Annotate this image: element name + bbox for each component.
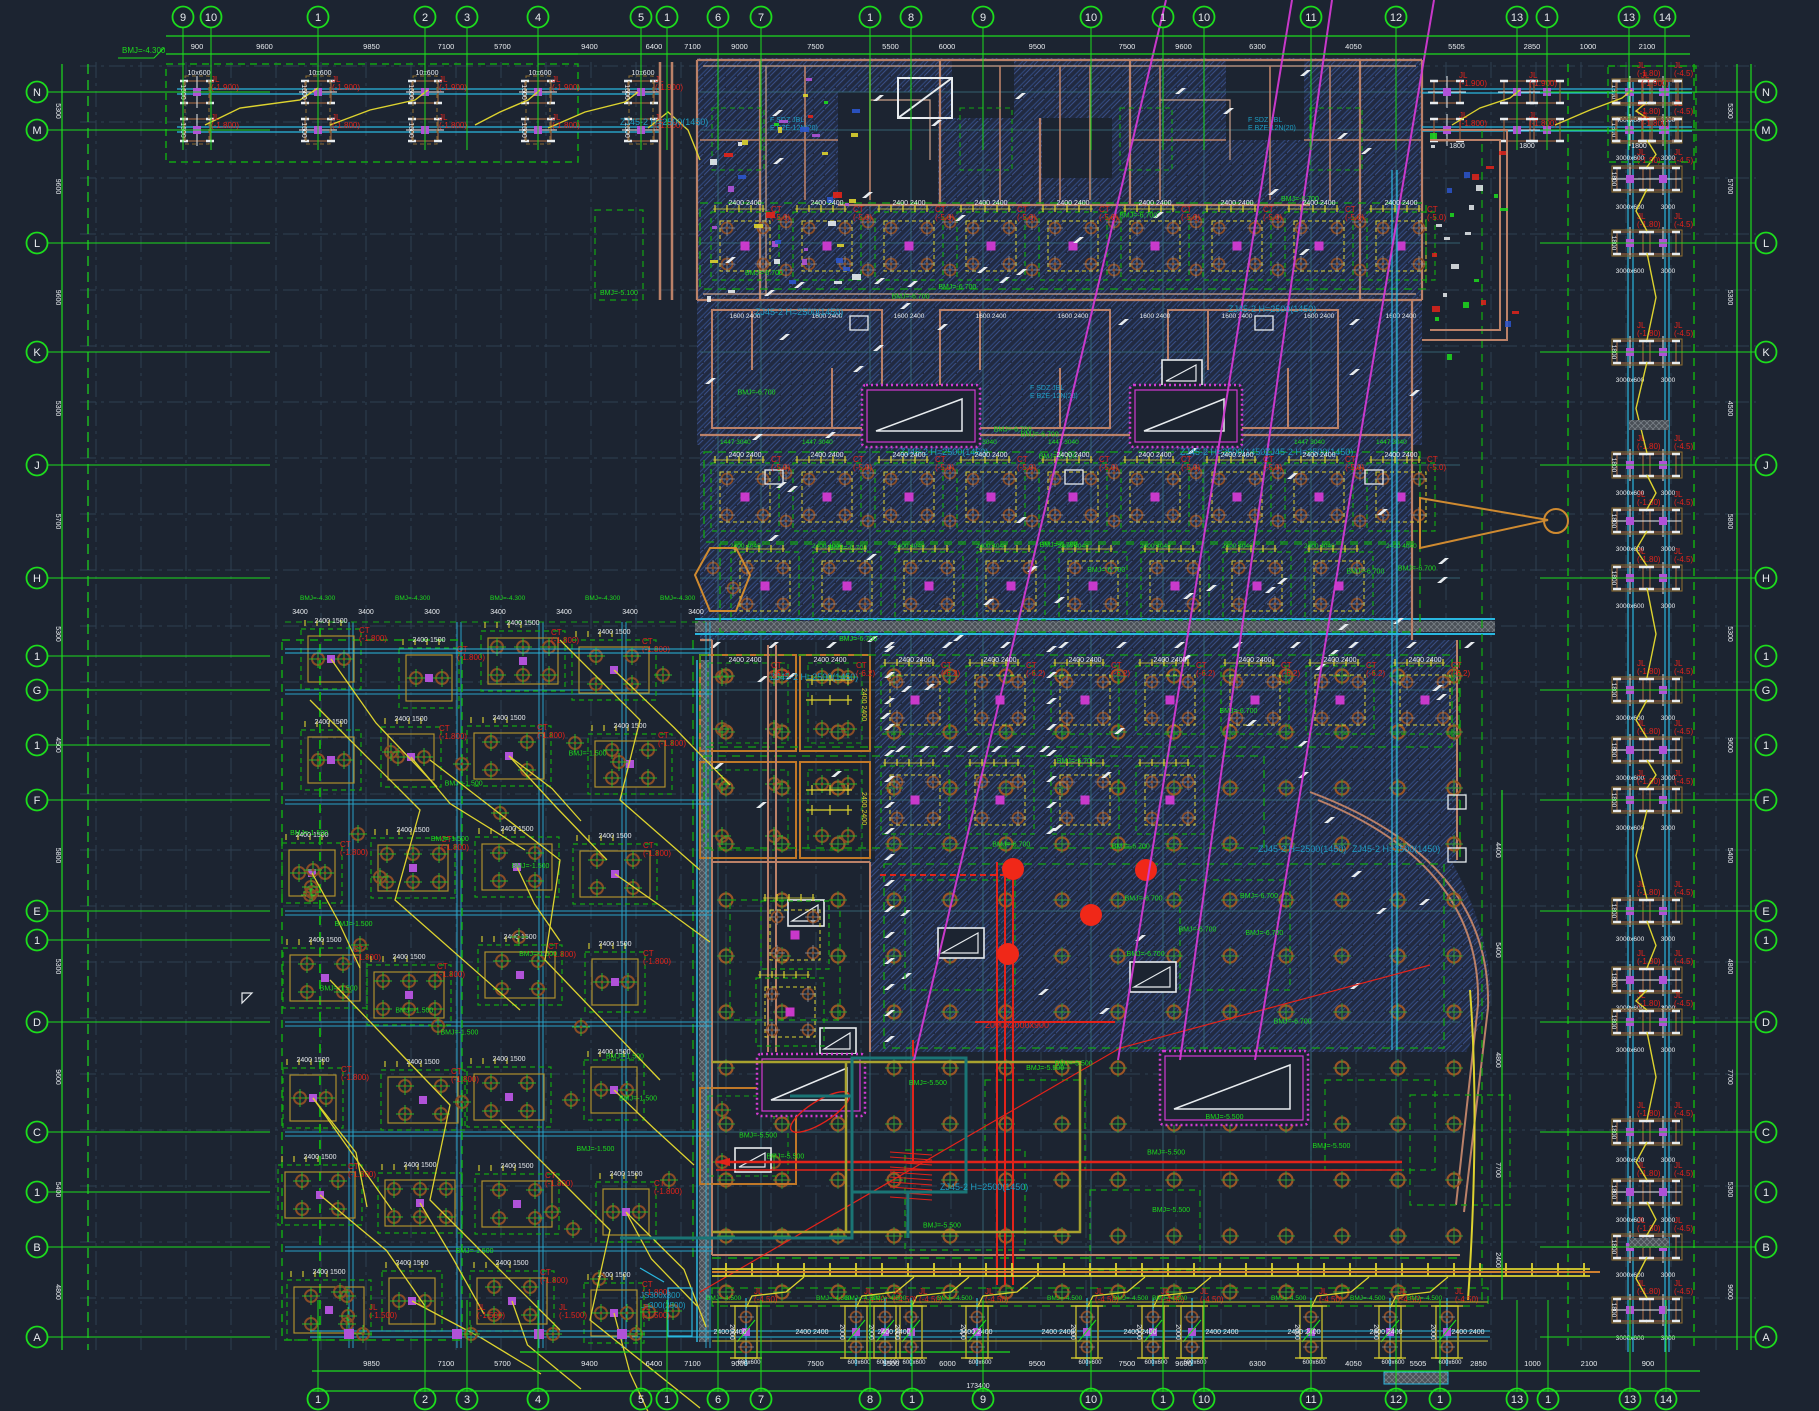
svg-text:9600: 9600 bbox=[1175, 42, 1192, 51]
svg-text:(-1.800): (-1.800) bbox=[441, 843, 469, 852]
svg-text:2100: 2100 bbox=[1639, 42, 1656, 51]
svg-text:H: H bbox=[33, 573, 41, 585]
svg-text:(-5.0): (-5.0) bbox=[1181, 213, 1200, 222]
svg-text:BMJ=-4.300: BMJ=-4.300 bbox=[300, 595, 336, 602]
svg-text:2400 4040: 2400 4040 bbox=[1140, 543, 1171, 550]
svg-text:13: 13 bbox=[1624, 1394, 1636, 1406]
svg-text:2400 4040: 2400 4040 bbox=[1222, 543, 1253, 550]
svg-text:10x600: 10x600 bbox=[416, 70, 439, 77]
svg-text:BMJ=-1.500: BMJ=-1.500 bbox=[395, 1008, 433, 1015]
svg-text:1000: 1000 bbox=[1580, 42, 1597, 51]
svg-text:M: M bbox=[1761, 125, 1770, 137]
svg-text:600x600: 600x600 bbox=[1438, 1360, 1462, 1366]
svg-text:BMJ=-5.500: BMJ=-5.500 bbox=[1312, 1143, 1350, 1150]
svg-text:3400: 3400 bbox=[490, 609, 506, 616]
svg-text:7100: 7100 bbox=[684, 1359, 701, 1368]
svg-text:4050: 4050 bbox=[1345, 1359, 1362, 1368]
svg-text:3: 3 bbox=[464, 1394, 470, 1406]
svg-text:6300: 6300 bbox=[1249, 1359, 1266, 1368]
svg-text:(-5.0): (-5.0) bbox=[935, 213, 954, 222]
svg-text:(-6.2): (-6.2) bbox=[1026, 669, 1045, 678]
svg-text:BMJ=-1.500: BMJ=-1.500 bbox=[290, 830, 328, 837]
svg-text:(-1.800): (-1.800) bbox=[439, 121, 467, 130]
svg-text:7500: 7500 bbox=[807, 42, 824, 51]
svg-text:BMJ=-4.300: BMJ=-4.300 bbox=[395, 595, 431, 602]
svg-text:5800: 5800 bbox=[54, 848, 61, 864]
svg-text:1447 3040: 1447 3040 bbox=[802, 439, 833, 446]
svg-text:1: 1 bbox=[1763, 1187, 1769, 1199]
svg-text:1800: 1800 bbox=[1449, 143, 1465, 150]
svg-text:2400 1500: 2400 1500 bbox=[492, 1056, 525, 1063]
svg-text:1: 1 bbox=[1763, 651, 1769, 663]
svg-text:5: 5 bbox=[638, 1394, 644, 1406]
svg-text:1: 1 bbox=[664, 12, 670, 24]
svg-text:1800: 1800 bbox=[1610, 1185, 1617, 1200]
svg-text:5505: 5505 bbox=[1410, 1359, 1427, 1368]
svg-text:13: 13 bbox=[1623, 12, 1635, 24]
svg-text:BMJ=-1.500: BMJ=-1.500 bbox=[431, 836, 469, 843]
svg-text:3000: 3000 bbox=[1661, 1335, 1676, 1342]
svg-text:1447 3040: 1447 3040 bbox=[1048, 439, 1079, 446]
svg-text:5300: 5300 bbox=[1726, 103, 1733, 119]
svg-text:(-6.2): (-6.2) bbox=[1196, 669, 1215, 678]
svg-text:(-4.5): (-4.5) bbox=[1674, 329, 1693, 338]
svg-text:1800: 1800 bbox=[1610, 973, 1617, 988]
svg-text:(-1.800): (-1.800) bbox=[1459, 119, 1487, 128]
svg-text:2400 1500: 2400 1500 bbox=[303, 1154, 336, 1161]
svg-text:6400: 6400 bbox=[646, 42, 663, 51]
svg-text:(-1.800): (-1.800) bbox=[658, 739, 686, 748]
svg-text:2400 4040: 2400 4040 bbox=[1386, 543, 1417, 550]
svg-text:(-6.2): (-6.2) bbox=[856, 669, 875, 678]
svg-text:2000: 2000 bbox=[1174, 1324, 1181, 1340]
svg-text:L: L bbox=[34, 238, 40, 250]
svg-text:7500: 7500 bbox=[1119, 1359, 1136, 1368]
svg-text:2000: 2000 bbox=[838, 1324, 845, 1340]
svg-text:10x600: 10x600 bbox=[529, 70, 552, 77]
svg-text:2400 1500: 2400 1500 bbox=[403, 1162, 436, 1169]
svg-text:F SDZ JBL: F SDZ JBL bbox=[1030, 385, 1064, 392]
svg-text:(-1.800): (-1.800) bbox=[341, 1073, 369, 1082]
svg-text:5800: 5800 bbox=[1726, 514, 1733, 530]
svg-text:BMJ=-6.700: BMJ=-6.700 bbox=[1240, 893, 1278, 900]
svg-text:(-1.800): (-1.800) bbox=[439, 732, 467, 741]
svg-text:2400 1500: 2400 1500 bbox=[314, 719, 347, 726]
svg-text:(-4.5): (-4.5) bbox=[1674, 777, 1693, 786]
svg-text:1600: 1600 bbox=[623, 84, 630, 100]
svg-text:10x600: 10x600 bbox=[309, 70, 332, 77]
svg-text:5700: 5700 bbox=[54, 514, 61, 530]
svg-text:2400 2400: 2400 2400 bbox=[1302, 452, 1335, 459]
svg-text:2400 1500: 2400 1500 bbox=[598, 833, 631, 840]
svg-text:J: J bbox=[1763, 460, 1769, 472]
svg-text:2400 2400: 2400 2400 bbox=[813, 657, 846, 664]
svg-text:BMJ=-5.100: BMJ=-5.100 bbox=[600, 290, 638, 297]
svg-text:1600: 1600 bbox=[407, 122, 414, 138]
svg-text:BMJ=-5.500: BMJ=-5.500 bbox=[739, 1133, 777, 1140]
svg-text:1600 2400: 1600 2400 bbox=[1140, 313, 1171, 320]
svg-text:(-6.2): (-6.2) bbox=[771, 669, 790, 678]
svg-text:(-5.0): (-5.0) bbox=[1427, 463, 1446, 472]
svg-text:1600 2400: 1600 2400 bbox=[1222, 313, 1253, 320]
svg-text:(-1.500): (-1.500) bbox=[369, 1311, 397, 1320]
svg-text:7: 7 bbox=[758, 1394, 764, 1406]
svg-text:9000: 9000 bbox=[731, 42, 748, 51]
svg-text:3400: 3400 bbox=[292, 609, 308, 616]
svg-text:(-5.0): (-5.0) bbox=[771, 463, 790, 472]
svg-text:(-5.0): (-5.0) bbox=[1263, 463, 1282, 472]
svg-text:2400 2400: 2400 2400 bbox=[974, 452, 1007, 459]
svg-text:7: 7 bbox=[758, 12, 764, 24]
svg-text:BMJ=-6.700: BMJ=-6.700 bbox=[738, 390, 776, 397]
svg-text:BMJ=-5.500: BMJ=-5.500 bbox=[1206, 1114, 1244, 1121]
svg-text:7700: 7700 bbox=[1494, 1162, 1501, 1178]
svg-text:(-1.900): (-1.900) bbox=[1459, 79, 1487, 88]
svg-text:600x600: 600x600 bbox=[902, 1360, 926, 1366]
svg-text:BMJ=-6.700: BMJ=-6.700 bbox=[1112, 844, 1150, 851]
svg-text:(-1.500): (-1.500) bbox=[477, 1311, 505, 1320]
svg-text:M: M bbox=[32, 125, 41, 137]
svg-text:3000x600: 3000x600 bbox=[1616, 204, 1645, 211]
svg-text:(-6.2): (-6.2) bbox=[1366, 669, 1385, 678]
svg-text:6300: 6300 bbox=[1249, 42, 1266, 51]
svg-text:2400 2400: 2400 2400 bbox=[1220, 200, 1253, 207]
svg-text:BMJ=-6.700: BMJ=-6.700 bbox=[1087, 567, 1125, 574]
svg-text:BMJ=-6.700: BMJ=-6.700 bbox=[829, 545, 867, 552]
svg-text:11: 11 bbox=[1305, 1394, 1316, 1406]
svg-text:BMJ=-4.300: BMJ=-4.300 bbox=[122, 46, 166, 55]
svg-text:2100: 2100 bbox=[1581, 1359, 1598, 1368]
svg-text:2400 2400: 2400 2400 bbox=[1153, 657, 1186, 664]
svg-text:(-1.80): (-1.80) bbox=[1637, 1287, 1661, 1296]
svg-text:6: 6 bbox=[715, 12, 721, 24]
svg-text:2400: 2400 bbox=[1494, 1252, 1501, 1268]
svg-text:2400 2400: 2400 2400 bbox=[1408, 657, 1441, 664]
svg-text:(-6.2): (-6.2) bbox=[1111, 669, 1130, 678]
svg-text:BMJ=-1.500: BMJ=-1.500 bbox=[512, 863, 550, 870]
svg-text:9600: 9600 bbox=[54, 1069, 61, 1085]
svg-text:2000x2000x900: 2000x2000x900 bbox=[985, 1020, 1049, 1030]
svg-text:2400 4040: 2400 4040 bbox=[1304, 543, 1335, 550]
svg-text:C: C bbox=[33, 1127, 41, 1139]
svg-text:G: G bbox=[33, 685, 42, 697]
svg-text:(-5.0): (-5.0) bbox=[853, 213, 872, 222]
svg-text:1: 1 bbox=[1545, 1394, 1551, 1406]
svg-text:1600 2400: 1600 2400 bbox=[1058, 313, 1089, 320]
svg-text:10: 10 bbox=[1085, 1394, 1097, 1406]
svg-text:BMJ=-6.700: BMJ=-6.700 bbox=[745, 270, 783, 277]
svg-text:3000: 3000 bbox=[1661, 936, 1676, 943]
svg-text:BMJ=-6.700: BMJ=-6.700 bbox=[992, 841, 1030, 848]
svg-text:9000: 9000 bbox=[731, 1359, 748, 1368]
svg-text:(-6.2): (-6.2) bbox=[1451, 669, 1470, 678]
svg-text:2400 2400: 2400 2400 bbox=[1138, 200, 1171, 207]
svg-text:3000x600: 3000x600 bbox=[1616, 377, 1645, 384]
svg-text:(-1.800): (-1.800) bbox=[654, 1187, 682, 1196]
svg-text:9400: 9400 bbox=[581, 42, 598, 51]
svg-text:1800: 1800 bbox=[1610, 743, 1617, 758]
svg-text:1: 1 bbox=[1763, 935, 1769, 947]
svg-text:900: 900 bbox=[191, 42, 204, 51]
svg-text:2400 1500: 2400 1500 bbox=[492, 715, 525, 722]
svg-text:G: G bbox=[1762, 685, 1771, 697]
svg-text:9600: 9600 bbox=[1726, 1284, 1733, 1300]
svg-text:1600: 1600 bbox=[300, 84, 307, 100]
svg-text:3000x600: 3000x600 bbox=[1616, 1047, 1645, 1054]
svg-text:2400 2400: 2400 2400 bbox=[1287, 1329, 1320, 1336]
svg-text:1: 1 bbox=[1544, 12, 1550, 24]
svg-text:(-1.800): (-1.800) bbox=[340, 848, 368, 857]
svg-text:600x600: 600x600 bbox=[1381, 1360, 1405, 1366]
svg-text:9500: 9500 bbox=[1029, 42, 1046, 51]
svg-text:6000: 6000 bbox=[939, 42, 956, 51]
svg-text:2400 2400: 2400 2400 bbox=[1056, 452, 1089, 459]
svg-text:600x600: 600x600 bbox=[1302, 1360, 1326, 1366]
svg-text:9850: 9850 bbox=[363, 42, 380, 51]
svg-text:1: 1 bbox=[315, 1394, 321, 1406]
svg-text:ZJ45-2 H=2500(1450): ZJ45-2 H=2500(1450) bbox=[1352, 844, 1440, 854]
svg-text:1600: 1600 bbox=[407, 84, 414, 100]
svg-text:5300: 5300 bbox=[1726, 290, 1733, 306]
svg-text:10: 10 bbox=[1085, 12, 1097, 24]
svg-text:ZJ45-2 H=2500(1450): ZJ45-2 H=2500(1450) bbox=[1258, 844, 1346, 854]
svg-text:2400 2400: 2400 2400 bbox=[728, 452, 761, 459]
svg-text:2400 1500: 2400 1500 bbox=[500, 1163, 533, 1170]
svg-text:3000x600: 3000x600 bbox=[1616, 603, 1645, 610]
svg-text:12: 12 bbox=[1390, 12, 1402, 24]
svg-text:9: 9 bbox=[980, 1394, 986, 1406]
svg-text:2400 2400: 2400 2400 bbox=[892, 200, 925, 207]
svg-text:K: K bbox=[33, 347, 41, 359]
svg-text:(-1.800): (-1.800) bbox=[552, 121, 580, 130]
svg-text:(-4.5): (-4.5) bbox=[1674, 957, 1693, 966]
svg-text:10: 10 bbox=[1198, 12, 1210, 24]
svg-text:(-4.5): (-4.5) bbox=[1674, 69, 1693, 78]
svg-text:1447 3040: 1447 3040 bbox=[1294, 439, 1325, 446]
svg-text:9600: 9600 bbox=[1175, 1359, 1192, 1368]
svg-text:5300: 5300 bbox=[54, 626, 61, 642]
svg-text:BMJ=-1.500: BMJ=-1.500 bbox=[576, 1146, 614, 1153]
svg-text:(-6.2): (-6.2) bbox=[941, 669, 960, 678]
svg-text:(-5.0): (-5.0) bbox=[1427, 213, 1446, 222]
svg-text:9500: 9500 bbox=[1029, 1359, 1046, 1368]
svg-text:4800: 4800 bbox=[1726, 959, 1733, 975]
svg-text:2400 2400: 2400 2400 bbox=[898, 657, 931, 664]
svg-text:L: L bbox=[1763, 238, 1769, 250]
svg-text:2400 1500: 2400 1500 bbox=[506, 620, 539, 627]
svg-text:9850: 9850 bbox=[363, 1359, 380, 1368]
svg-text:ZJ45-2 H=2500(1450): ZJ45-2 H=2500(1450) bbox=[1228, 304, 1316, 314]
svg-text:9600: 9600 bbox=[54, 290, 61, 306]
svg-text:3000: 3000 bbox=[1661, 377, 1676, 384]
svg-text:1: 1 bbox=[909, 1394, 915, 1406]
svg-text:9600: 9600 bbox=[1726, 737, 1733, 753]
svg-text:2400 2400: 2400 2400 bbox=[728, 200, 761, 207]
svg-text:(-1.900): (-1.900) bbox=[1529, 79, 1557, 88]
svg-text:(-5.0): (-5.0) bbox=[1099, 463, 1118, 472]
svg-text:H: H bbox=[1762, 573, 1770, 585]
svg-text:(-4.5): (-4.5) bbox=[1674, 727, 1693, 736]
svg-text:BMJ=-6.700: BMJ=-6.700 bbox=[1346, 568, 1384, 575]
svg-text:1800: 1800 bbox=[1631, 143, 1647, 150]
svg-text:10x600: 10x600 bbox=[188, 70, 211, 77]
svg-text:BMJ=-4.300: BMJ=-4.300 bbox=[490, 595, 526, 602]
svg-text:2400 1500: 2400 1500 bbox=[296, 1057, 329, 1064]
svg-text:BMJ=-4.500: BMJ=-4.500 bbox=[1047, 1295, 1083, 1302]
svg-text:E: E bbox=[1762, 906, 1769, 918]
svg-text:2400 1500: 2400 1500 bbox=[395, 1260, 428, 1267]
svg-text:5400: 5400 bbox=[1726, 848, 1733, 864]
svg-text:1: 1 bbox=[1763, 740, 1769, 752]
svg-text:2400 4040: 2400 4040 bbox=[976, 543, 1007, 550]
svg-text:2400 2400: 2400 2400 bbox=[974, 200, 1007, 207]
svg-text:(-5.0): (-5.0) bbox=[1263, 213, 1282, 222]
svg-text:(-4.5): (-4.5) bbox=[1674, 555, 1693, 564]
svg-text:2: 2 bbox=[422, 1394, 428, 1406]
svg-text:1600 2400: 1600 2400 bbox=[1304, 313, 1335, 320]
svg-text:3000: 3000 bbox=[1661, 1272, 1676, 1279]
svg-text:2400 2400: 2400 2400 bbox=[728, 657, 761, 664]
svg-text:2: 2 bbox=[422, 12, 428, 24]
svg-text:3000x600: 3000x600 bbox=[1616, 1272, 1645, 1279]
svg-text:BMJ=-6.700: BMJ=-6.700 bbox=[1057, 758, 1095, 765]
svg-text:(-1.800): (-1.800) bbox=[332, 121, 360, 130]
svg-text:9400: 9400 bbox=[581, 1359, 598, 1368]
svg-text:2400 1500: 2400 1500 bbox=[392, 954, 425, 961]
svg-text:3000x600: 3000x600 bbox=[1616, 936, 1645, 943]
svg-text:(-4.5): (-4.5) bbox=[1674, 107, 1693, 116]
svg-text:(-4.5): (-4.5) bbox=[1674, 220, 1693, 229]
svg-text:(-1.800): (-1.800) bbox=[545, 1179, 573, 1188]
svg-text:BMJ=-5.500: BMJ=-5.500 bbox=[923, 1222, 961, 1229]
svg-text:13: 13 bbox=[1511, 1394, 1523, 1406]
svg-text:2400 1500: 2400 1500 bbox=[495, 1260, 528, 1267]
svg-text:2400 2400: 2400 2400 bbox=[1205, 1329, 1238, 1336]
svg-text:1: 1 bbox=[1160, 12, 1166, 24]
svg-text:BMJ=-5.500: BMJ=-5.500 bbox=[766, 1154, 804, 1161]
svg-text:BMJ=-6.700: BMJ=-6.700 bbox=[1040, 542, 1078, 549]
svg-text:BMJ=-1.500: BMJ=-1.500 bbox=[619, 1096, 657, 1103]
svg-text:(-5.0): (-5.0) bbox=[1345, 213, 1364, 222]
svg-text:B: B bbox=[1762, 1242, 1769, 1254]
svg-text:600x600: 600x600 bbox=[968, 1360, 992, 1366]
svg-text:BMJ=-6.700: BMJ=-6.700 bbox=[938, 284, 976, 291]
svg-text:BMJ=-1.500: BMJ=-1.500 bbox=[456, 1248, 494, 1255]
svg-text:BMJ=-4.500: BMJ=-4.500 bbox=[1350, 1295, 1386, 1302]
svg-text:BMJ=-5.500: BMJ=-5.500 bbox=[1152, 1207, 1190, 1214]
svg-text:2400 2400: 2400 2400 bbox=[810, 452, 843, 459]
svg-text:E: E bbox=[33, 906, 40, 918]
svg-text:BMJ=-6.700: BMJ=-6.700 bbox=[1127, 951, 1165, 958]
svg-text:4500: 4500 bbox=[1726, 401, 1733, 417]
svg-text:7100: 7100 bbox=[438, 1359, 455, 1368]
svg-text:600x600: 600x600 bbox=[1078, 1360, 1102, 1366]
svg-text:BMJ=-6.700: BMJ=-6.700 bbox=[1125, 896, 1163, 903]
svg-text:BMJ=-4.500: BMJ=-4.500 bbox=[1271, 1295, 1307, 1302]
svg-text:2400 2400: 2400 2400 bbox=[1369, 1329, 1402, 1336]
svg-text:(-1.800): (-1.800) bbox=[211, 121, 239, 130]
svg-text:1600: 1600 bbox=[520, 84, 527, 100]
svg-text:F: F bbox=[34, 795, 41, 807]
svg-text:5300: 5300 bbox=[54, 103, 61, 119]
svg-text:1600 2400: 1600 2400 bbox=[976, 313, 1007, 320]
svg-text:3000: 3000 bbox=[1661, 1047, 1676, 1054]
svg-text:BMJ=-1.500: BMJ=-1.500 bbox=[519, 951, 557, 958]
svg-text:BMJ=-4.300: BMJ=-4.300 bbox=[660, 595, 696, 602]
svg-text:2400 2400: 2400 2400 bbox=[1138, 452, 1171, 459]
svg-text:BMJ=-6.700: BMJ=-6.700 bbox=[1398, 566, 1436, 573]
svg-text:3000: 3000 bbox=[1661, 825, 1676, 832]
svg-text:5500: 5500 bbox=[883, 1359, 900, 1368]
svg-text:D: D bbox=[1762, 1017, 1770, 1029]
svg-text:2400 2400: 2400 2400 bbox=[959, 1329, 992, 1336]
svg-text:(-1.80): (-1.80) bbox=[1637, 999, 1661, 1008]
svg-text:ZJ45-2 H=2500(1450): ZJ45-2 H=2500(1450) bbox=[620, 117, 708, 127]
svg-text:9: 9 bbox=[980, 12, 986, 24]
svg-text:7700: 7700 bbox=[1726, 1069, 1733, 1085]
svg-text:2400 2400: 2400 2400 bbox=[1384, 452, 1417, 459]
svg-text:(-1.800): (-1.800) bbox=[1529, 119, 1557, 128]
svg-text:2400 1500: 2400 1500 bbox=[609, 1171, 642, 1178]
svg-text:10: 10 bbox=[205, 12, 217, 24]
svg-text:BMJ=-4.500: BMJ=-4.500 bbox=[937, 1295, 973, 1302]
svg-text:2400 2400: 2400 2400 bbox=[983, 657, 1016, 664]
svg-text:2400 2400: 2400 2400 bbox=[1041, 1329, 1074, 1336]
svg-text:B: B bbox=[33, 1242, 40, 1254]
svg-text:8: 8 bbox=[867, 1394, 873, 1406]
svg-text:(-1.900): (-1.900) bbox=[439, 83, 467, 92]
svg-text:13: 13 bbox=[1511, 12, 1523, 24]
svg-text:8: 8 bbox=[908, 12, 914, 24]
svg-text:1600 2400: 1600 2400 bbox=[1386, 313, 1417, 320]
svg-text:2400 2400: 2400 2400 bbox=[1123, 1329, 1156, 1336]
svg-text:(-1.900): (-1.900) bbox=[332, 83, 360, 92]
svg-text:4050: 4050 bbox=[1345, 42, 1362, 51]
svg-text:3400: 3400 bbox=[424, 609, 440, 616]
svg-text:BMJ=-1.500: BMJ=-1.500 bbox=[335, 921, 373, 928]
svg-text:2400 2400: 2400 2400 bbox=[860, 792, 867, 825]
svg-text:1: 1 bbox=[664, 1394, 670, 1406]
svg-text:1: 1 bbox=[34, 1187, 40, 1199]
svg-text:ZJ45-2 H=2500(1450): ZJ45-2 H=2500(1450) bbox=[940, 1182, 1028, 1192]
svg-text:(-1.900): (-1.900) bbox=[552, 83, 580, 92]
svg-text:BMJ=-6.700: BMJ=-6.700 bbox=[1219, 708, 1257, 715]
svg-text:C: C bbox=[1762, 1127, 1770, 1139]
svg-text:2400 2400: 2400 2400 bbox=[810, 200, 843, 207]
svg-text:(-1.500): (-1.500) bbox=[559, 1311, 587, 1320]
svg-text:12: 12 bbox=[1390, 1394, 1402, 1406]
svg-text:BMJ=-4.500: BMJ=-4.500 bbox=[1407, 1295, 1443, 1302]
svg-text:(-4.5): (-4.5) bbox=[1674, 156, 1693, 165]
svg-text:1800: 1800 bbox=[1610, 172, 1617, 187]
svg-text:600x600: 600x600 bbox=[847, 1360, 871, 1366]
svg-text:5505: 5505 bbox=[1448, 42, 1465, 51]
svg-text:2400 2400: 2400 2400 bbox=[1068, 657, 1101, 664]
svg-text:10: 10 bbox=[1198, 1394, 1210, 1406]
svg-text:(-1.80): (-1.80) bbox=[1637, 220, 1661, 229]
svg-text:BMJ=-4.500: BMJ=-4.500 bbox=[871, 1295, 907, 1302]
svg-text:5700: 5700 bbox=[494, 1359, 511, 1368]
svg-text:2400 1500: 2400 1500 bbox=[613, 723, 646, 730]
svg-text:900: 900 bbox=[1642, 1359, 1655, 1368]
svg-text:7100: 7100 bbox=[438, 42, 455, 51]
svg-text:2400 4040: 2400 4040 bbox=[894, 543, 925, 550]
svg-text:3000x600: 3000x600 bbox=[1616, 825, 1645, 832]
svg-text:5300: 5300 bbox=[1726, 626, 1733, 642]
svg-text:(-4.5): (-4.5) bbox=[1674, 1169, 1693, 1178]
svg-text:1: 1 bbox=[34, 651, 40, 663]
svg-text:BMJ=-5.500: BMJ=-5.500 bbox=[1055, 1060, 1093, 1067]
